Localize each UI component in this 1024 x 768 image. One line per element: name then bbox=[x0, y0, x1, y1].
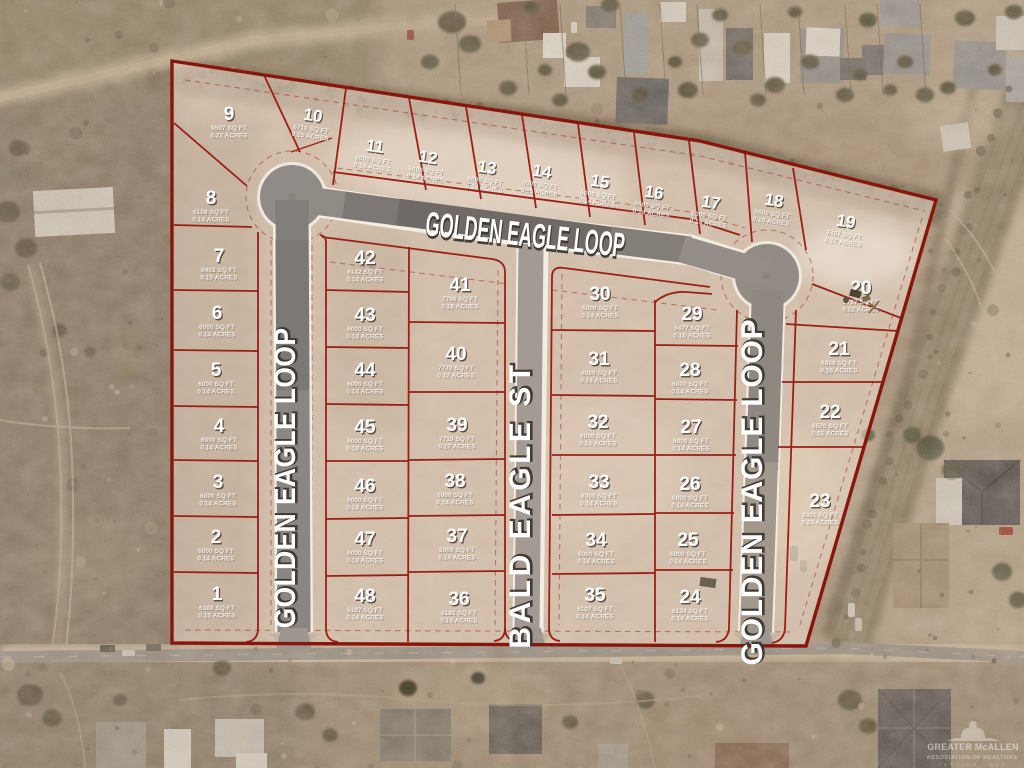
svg-text:0.14 ACRES: 0.14 ACRES bbox=[346, 389, 384, 396]
svg-text:6: 6 bbox=[212, 303, 223, 324]
svg-text:7719 SQ FT: 7719 SQ FT bbox=[439, 436, 475, 443]
svg-text:1: 1 bbox=[212, 584, 223, 605]
svg-text:6000 SQ FT: 6000 SQ FT bbox=[198, 381, 234, 388]
svg-text:23: 23 bbox=[809, 491, 830, 512]
svg-text:6000 SQ FT: 6000 SQ FT bbox=[201, 437, 237, 444]
svg-text:9301 SQ FT: 9301 SQ FT bbox=[802, 512, 838, 519]
svg-text:25: 25 bbox=[677, 530, 699, 551]
svg-text:6000 SQ FT: 6000 SQ FT bbox=[437, 492, 473, 499]
svg-text:44: 44 bbox=[354, 360, 376, 381]
svg-text:0.14 ACRES: 0.14 ACRES bbox=[346, 505, 384, 512]
svg-text:0.14 ACRES: 0.14 ACRES bbox=[199, 501, 237, 508]
svg-text:0.14 ACRES: 0.14 ACRES bbox=[197, 389, 235, 396]
svg-text:6000 SQ FT: 6000 SQ FT bbox=[581, 370, 617, 377]
svg-text:27: 27 bbox=[680, 417, 701, 438]
svg-text:6134 SQ FT: 6134 SQ FT bbox=[672, 608, 708, 615]
svg-text:33: 33 bbox=[588, 472, 609, 493]
svg-text:5: 5 bbox=[211, 360, 222, 381]
svg-text:29: 29 bbox=[681, 304, 702, 325]
svg-text:0.14 ACRES: 0.14 ACRES bbox=[669, 559, 707, 566]
svg-text:47: 47 bbox=[354, 529, 375, 550]
svg-text:6477 SQ FT: 6477 SQ FT bbox=[674, 325, 710, 332]
svg-text:6000 SQ FT: 6000 SQ FT bbox=[673, 438, 709, 445]
svg-text:32: 32 bbox=[587, 412, 608, 433]
svg-text:6000 SQ FT: 6000 SQ FT bbox=[347, 326, 383, 333]
svg-text:24: 24 bbox=[679, 587, 701, 608]
svg-text:8: 8 bbox=[206, 188, 217, 209]
svg-text:19: 19 bbox=[835, 211, 856, 232]
svg-text:34: 34 bbox=[585, 530, 607, 551]
svg-text:6838 SQ FT: 6838 SQ FT bbox=[821, 360, 857, 367]
svg-text:38: 38 bbox=[444, 471, 465, 492]
svg-text:17: 17 bbox=[700, 192, 721, 213]
svg-text:6000 SQ FT: 6000 SQ FT bbox=[439, 547, 475, 554]
svg-text:0.17 ACRES: 0.17 ACRES bbox=[437, 373, 475, 380]
svg-text:0.15 ACRES: 0.15 ACRES bbox=[811, 431, 849, 438]
svg-text:S E R V I N G S I N C E: S E R V I N G S I N C E bbox=[938, 762, 1005, 767]
svg-text:6000 SQ FT: 6000 SQ FT bbox=[672, 495, 708, 502]
svg-text:0.15 ACRES: 0.15 ACRES bbox=[198, 613, 236, 620]
svg-text:21: 21 bbox=[828, 339, 850, 360]
svg-text:0.16 ACRES: 0.16 ACRES bbox=[820, 368, 858, 375]
svg-text:28: 28 bbox=[679, 360, 700, 381]
svg-text:0.14 ACRES: 0.14 ACRES bbox=[198, 332, 236, 339]
svg-text:0.14 ACRES: 0.14 ACRES bbox=[580, 378, 618, 385]
svg-text:0.14 ACRES: 0.14 ACRES bbox=[671, 389, 709, 396]
svg-text:36: 36 bbox=[448, 589, 469, 610]
svg-text:0.14 ACRES: 0.14 ACRES bbox=[581, 313, 619, 320]
svg-text:6000 SQ FT: 6000 SQ FT bbox=[672, 381, 708, 388]
svg-text:6000 SQ FT: 6000 SQ FT bbox=[580, 433, 616, 440]
svg-text:42: 42 bbox=[354, 248, 375, 269]
svg-text:9: 9 bbox=[224, 104, 235, 125]
svg-text:0.14 ACRES: 0.14 ACRES bbox=[577, 559, 615, 566]
svg-text:15: 15 bbox=[589, 171, 610, 192]
svg-text:6000 SQ FT: 6000 SQ FT bbox=[347, 381, 383, 388]
svg-text:6108 SQ FT: 6108 SQ FT bbox=[193, 209, 229, 216]
svg-text:7770 SQ FT: 7770 SQ FT bbox=[438, 365, 474, 372]
svg-text:0.18 ACRES: 0.18 ACRES bbox=[441, 304, 479, 311]
svg-text:31: 31 bbox=[588, 349, 610, 370]
svg-text:0.14 ACRES: 0.14 ACRES bbox=[576, 614, 614, 621]
svg-text:BALD EAGLE ST: BALD EAGLE ST bbox=[504, 361, 537, 648]
svg-text:0.14 ACRES: 0.14 ACRES bbox=[197, 556, 235, 563]
svg-text:10: 10 bbox=[302, 105, 323, 126]
svg-text:0.14 ACRES: 0.14 ACRES bbox=[671, 503, 709, 510]
svg-text:6388 SQ FT: 6388 SQ FT bbox=[199, 605, 235, 612]
svg-text:0.14 ACRES: 0.14 ACRES bbox=[346, 334, 384, 341]
svg-text:26: 26 bbox=[679, 474, 700, 495]
svg-text:11: 11 bbox=[365, 136, 385, 157]
svg-text:0.14 ACRES: 0.14 ACRES bbox=[436, 500, 474, 507]
svg-text:37: 37 bbox=[446, 526, 467, 547]
svg-text:6000 SQ FT: 6000 SQ FT bbox=[347, 438, 383, 445]
svg-text:6000 SQ FT: 6000 SQ FT bbox=[582, 305, 618, 312]
svg-text:2: 2 bbox=[211, 527, 222, 548]
svg-text:41: 41 bbox=[449, 275, 471, 296]
svg-text:3: 3 bbox=[213, 472, 224, 493]
svg-text:46: 46 bbox=[354, 476, 375, 497]
svg-text:7796 SQ FT: 7796 SQ FT bbox=[442, 296, 478, 303]
svg-text:6000 SQ FT: 6000 SQ FT bbox=[347, 497, 383, 504]
svg-text:12: 12 bbox=[417, 147, 438, 168]
svg-text:18: 18 bbox=[763, 190, 784, 211]
svg-text:35: 35 bbox=[584, 585, 606, 606]
svg-text:14: 14 bbox=[531, 161, 553, 183]
svg-text:0.15 ACRES: 0.15 ACRES bbox=[200, 275, 238, 282]
svg-text:0.14 ACRES: 0.14 ACRES bbox=[346, 446, 384, 453]
svg-text:6403 SQ FT: 6403 SQ FT bbox=[201, 267, 237, 274]
svg-text:45: 45 bbox=[354, 417, 376, 438]
svg-text:0.14 ACRES: 0.14 ACRES bbox=[672, 446, 710, 453]
svg-text:GOLDEN EAGLE LOOP: GOLDEN EAGLE LOOP bbox=[736, 319, 769, 666]
svg-text:39: 39 bbox=[446, 415, 467, 436]
svg-text:0.15 ACRES: 0.15 ACRES bbox=[673, 333, 711, 340]
svg-text:6107 SQ FT: 6107 SQ FT bbox=[577, 606, 613, 613]
svg-text:40: 40 bbox=[445, 344, 466, 365]
svg-text:0.14 ACRES: 0.14 ACRES bbox=[346, 277, 384, 284]
svg-text:6000 SQ FT: 6000 SQ FT bbox=[347, 550, 383, 557]
svg-text:6000 SQ FT: 6000 SQ FT bbox=[670, 551, 706, 558]
svg-text:ASSOCIATION OF REALTORS: ASSOCIATION OF REALTORS bbox=[926, 755, 1017, 761]
svg-text:0.14 ACRES: 0.14 ACRES bbox=[346, 615, 384, 622]
svg-text:0.14 ACRES: 0.14 ACRES bbox=[440, 618, 478, 625]
svg-text:0.22 ACRES: 0.22 ACRES bbox=[210, 133, 248, 140]
svg-text:6000 SQ FT: 6000 SQ FT bbox=[198, 548, 234, 555]
svg-text:6142 SQ FT: 6142 SQ FT bbox=[347, 269, 383, 276]
svg-text:0.14 ACRES: 0.14 ACRES bbox=[671, 616, 709, 623]
svg-text:0.14 ACRES: 0.14 ACRES bbox=[200, 445, 238, 452]
svg-text:0.14 ACRES: 0.14 ACRES bbox=[580, 501, 618, 508]
svg-text:0.24 ACRES: 0.24 ACRES bbox=[801, 520, 839, 527]
svg-text:6107 SQ FT: 6107 SQ FT bbox=[347, 607, 383, 614]
svg-text:30: 30 bbox=[589, 284, 610, 305]
svg-text:7: 7 bbox=[214, 246, 225, 267]
svg-text:6000 SQ FT: 6000 SQ FT bbox=[578, 551, 614, 558]
svg-text:16: 16 bbox=[643, 182, 664, 203]
svg-text:4: 4 bbox=[214, 416, 225, 437]
svg-text:48: 48 bbox=[354, 586, 375, 607]
svg-text:0.17 ACRES: 0.17 ACRES bbox=[438, 444, 476, 451]
svg-text:22: 22 bbox=[819, 402, 840, 423]
svg-text:GOLDEN EAGLE LOOP: GOLDEN EAGLE LOOP bbox=[267, 328, 301, 629]
svg-text:43: 43 bbox=[354, 305, 375, 326]
svg-text:0.14 ACRES: 0.14 ACRES bbox=[579, 441, 617, 448]
svg-text:0.14 ACRES: 0.14 ACRES bbox=[438, 555, 476, 562]
svg-text:0.14 ACRES: 0.14 ACRES bbox=[346, 558, 384, 565]
svg-text:13: 13 bbox=[476, 157, 497, 178]
svg-text:9507 SQ FT: 9507 SQ FT bbox=[211, 125, 247, 132]
svg-text:6000 SQ FT: 6000 SQ FT bbox=[199, 324, 235, 331]
svg-text:0.14 ACRES: 0.14 ACRES bbox=[192, 217, 230, 224]
svg-text:6181 SQ FT: 6181 SQ FT bbox=[441, 610, 477, 617]
svg-text:6570 SQ FT: 6570 SQ FT bbox=[812, 423, 848, 430]
svg-text:6000 SQ FT: 6000 SQ FT bbox=[581, 493, 617, 500]
svg-text:GREATER McALLEN: GREATER McALLEN bbox=[927, 742, 1018, 752]
svg-text:6000 SQ FT: 6000 SQ FT bbox=[200, 493, 236, 500]
